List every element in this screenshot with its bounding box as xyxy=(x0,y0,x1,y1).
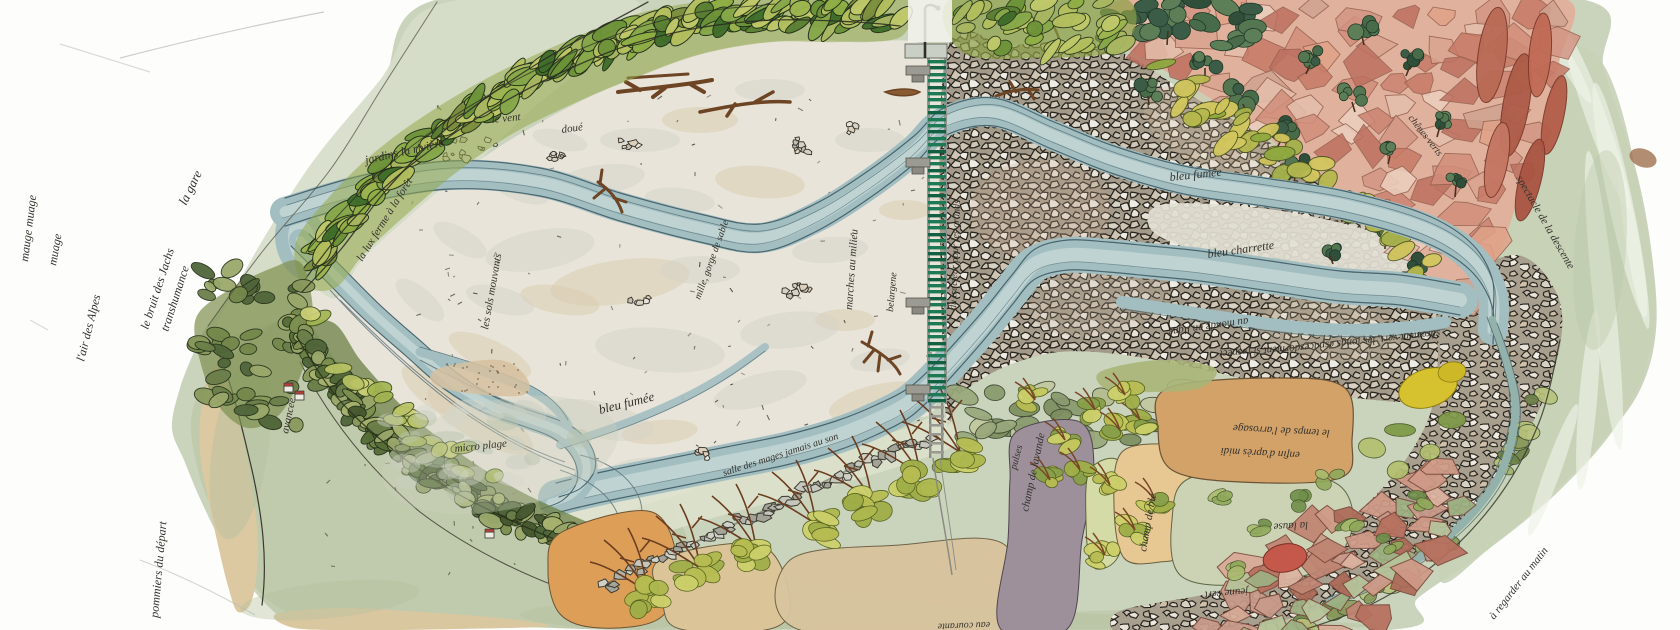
svg-text:la lause: la lause xyxy=(1273,519,1308,533)
svg-text:eau courante: eau courante xyxy=(937,619,990,630)
